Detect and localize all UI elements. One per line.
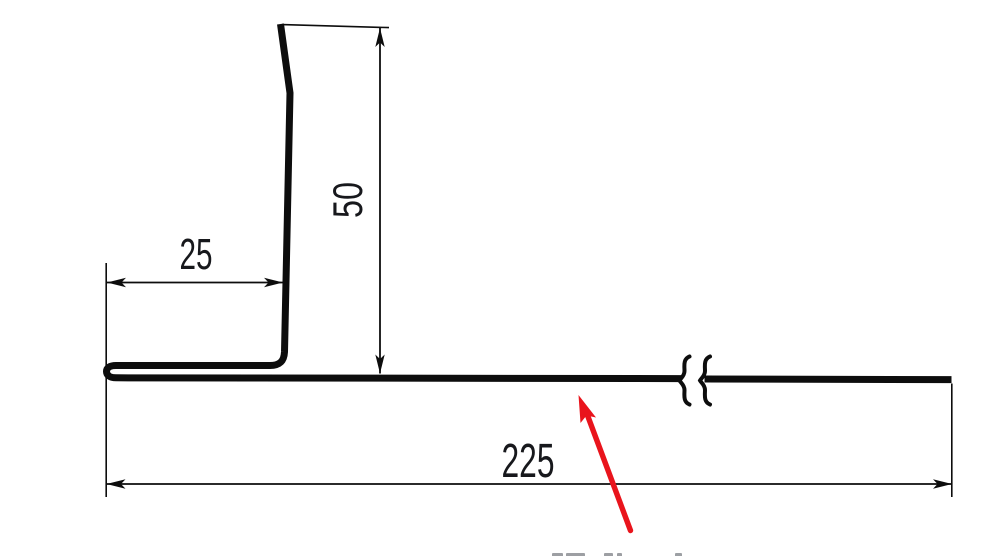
technical-drawing: 25 50 225 [0, 0, 992, 556]
dimension-label-50: 50 [324, 182, 371, 218]
red-arrow-shaft [587, 414, 631, 531]
callout-pointer [579, 395, 631, 531]
dimension-base-length: 225 [107, 435, 953, 489]
break-mark-left-icon [680, 357, 690, 405]
dimension-label-25: 25 [180, 230, 213, 279]
dimension-upstand-height: 50 [324, 28, 385, 374]
profile-base-continuation [705, 379, 952, 380]
extension-lines [106, 25, 952, 497]
extension-line-top [282, 25, 389, 28]
drawing-canvas: 25 50 225 [0, 0, 992, 556]
dimension-hem-width: 25 [107, 230, 283, 287]
profile-upstand-and-hem [107, 24, 683, 379]
profile-outline-group [107, 24, 952, 380]
dimension-label-225: 225 [502, 435, 555, 488]
